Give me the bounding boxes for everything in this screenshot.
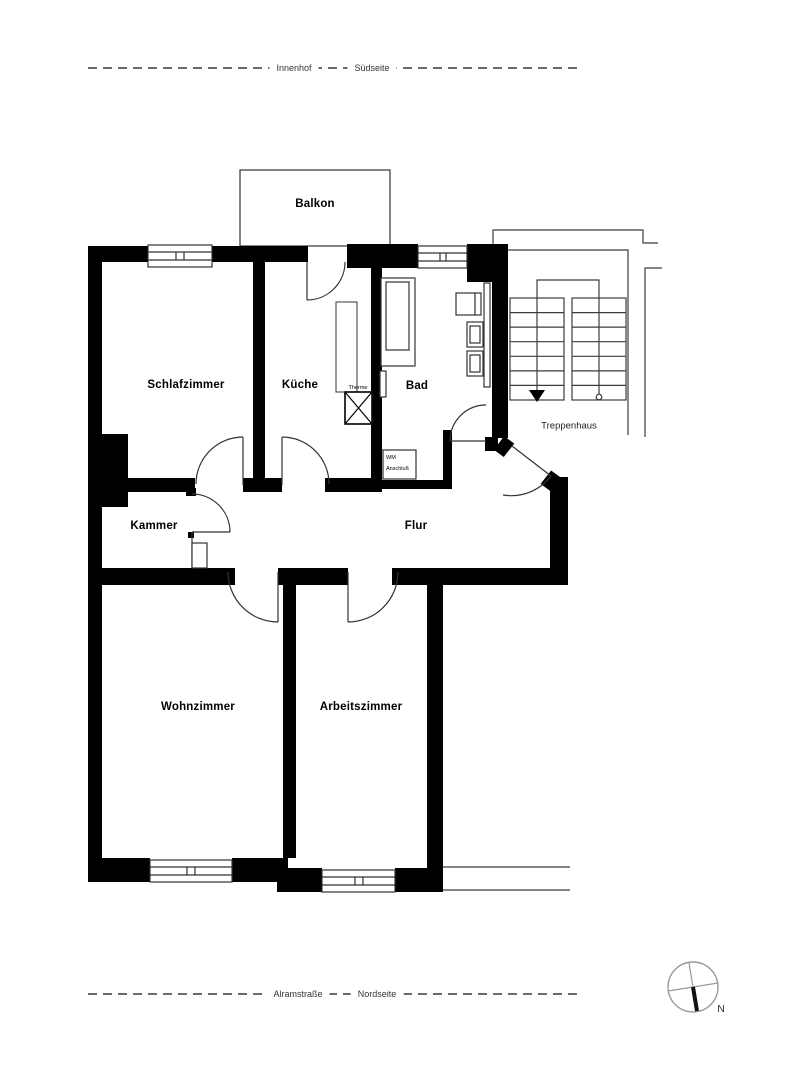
window-schlafzimmer (148, 245, 212, 267)
wm-connection-box (383, 450, 416, 479)
door-wohnzimmer (228, 572, 278, 622)
door-balcony (307, 262, 345, 300)
door-schlafzimmer (196, 437, 243, 485)
duct (484, 283, 490, 387)
window-bad (418, 246, 467, 268)
entrance-diagonal-wall (499, 443, 562, 489)
kammer-closet (192, 532, 207, 568)
floorplan-page: Innenhof Südseite Alramstraße Nordseite … (0, 0, 810, 1080)
sink (456, 293, 481, 315)
door-kammer (192, 494, 230, 532)
door-bad (450, 405, 486, 441)
door-kueche (282, 437, 329, 485)
kitchen-fixtures (336, 302, 372, 424)
stair-treads (510, 313, 626, 386)
window-wohnzimmer (150, 860, 232, 882)
neighbour-wall-lines (443, 867, 570, 890)
kitchen-shaft (336, 302, 357, 392)
radiator (380, 371, 386, 397)
floorplan-drawing (0, 0, 810, 1080)
stairwell (493, 230, 662, 437)
balcony-outline (240, 170, 390, 246)
compass-icon (668, 962, 718, 1012)
door-arbeitszimmer (348, 572, 398, 622)
walls-layer (88, 244, 568, 892)
site-boundary-lines (88, 68, 578, 994)
bath-fixtures (380, 278, 490, 397)
window-arbeitszimmer (322, 870, 395, 892)
